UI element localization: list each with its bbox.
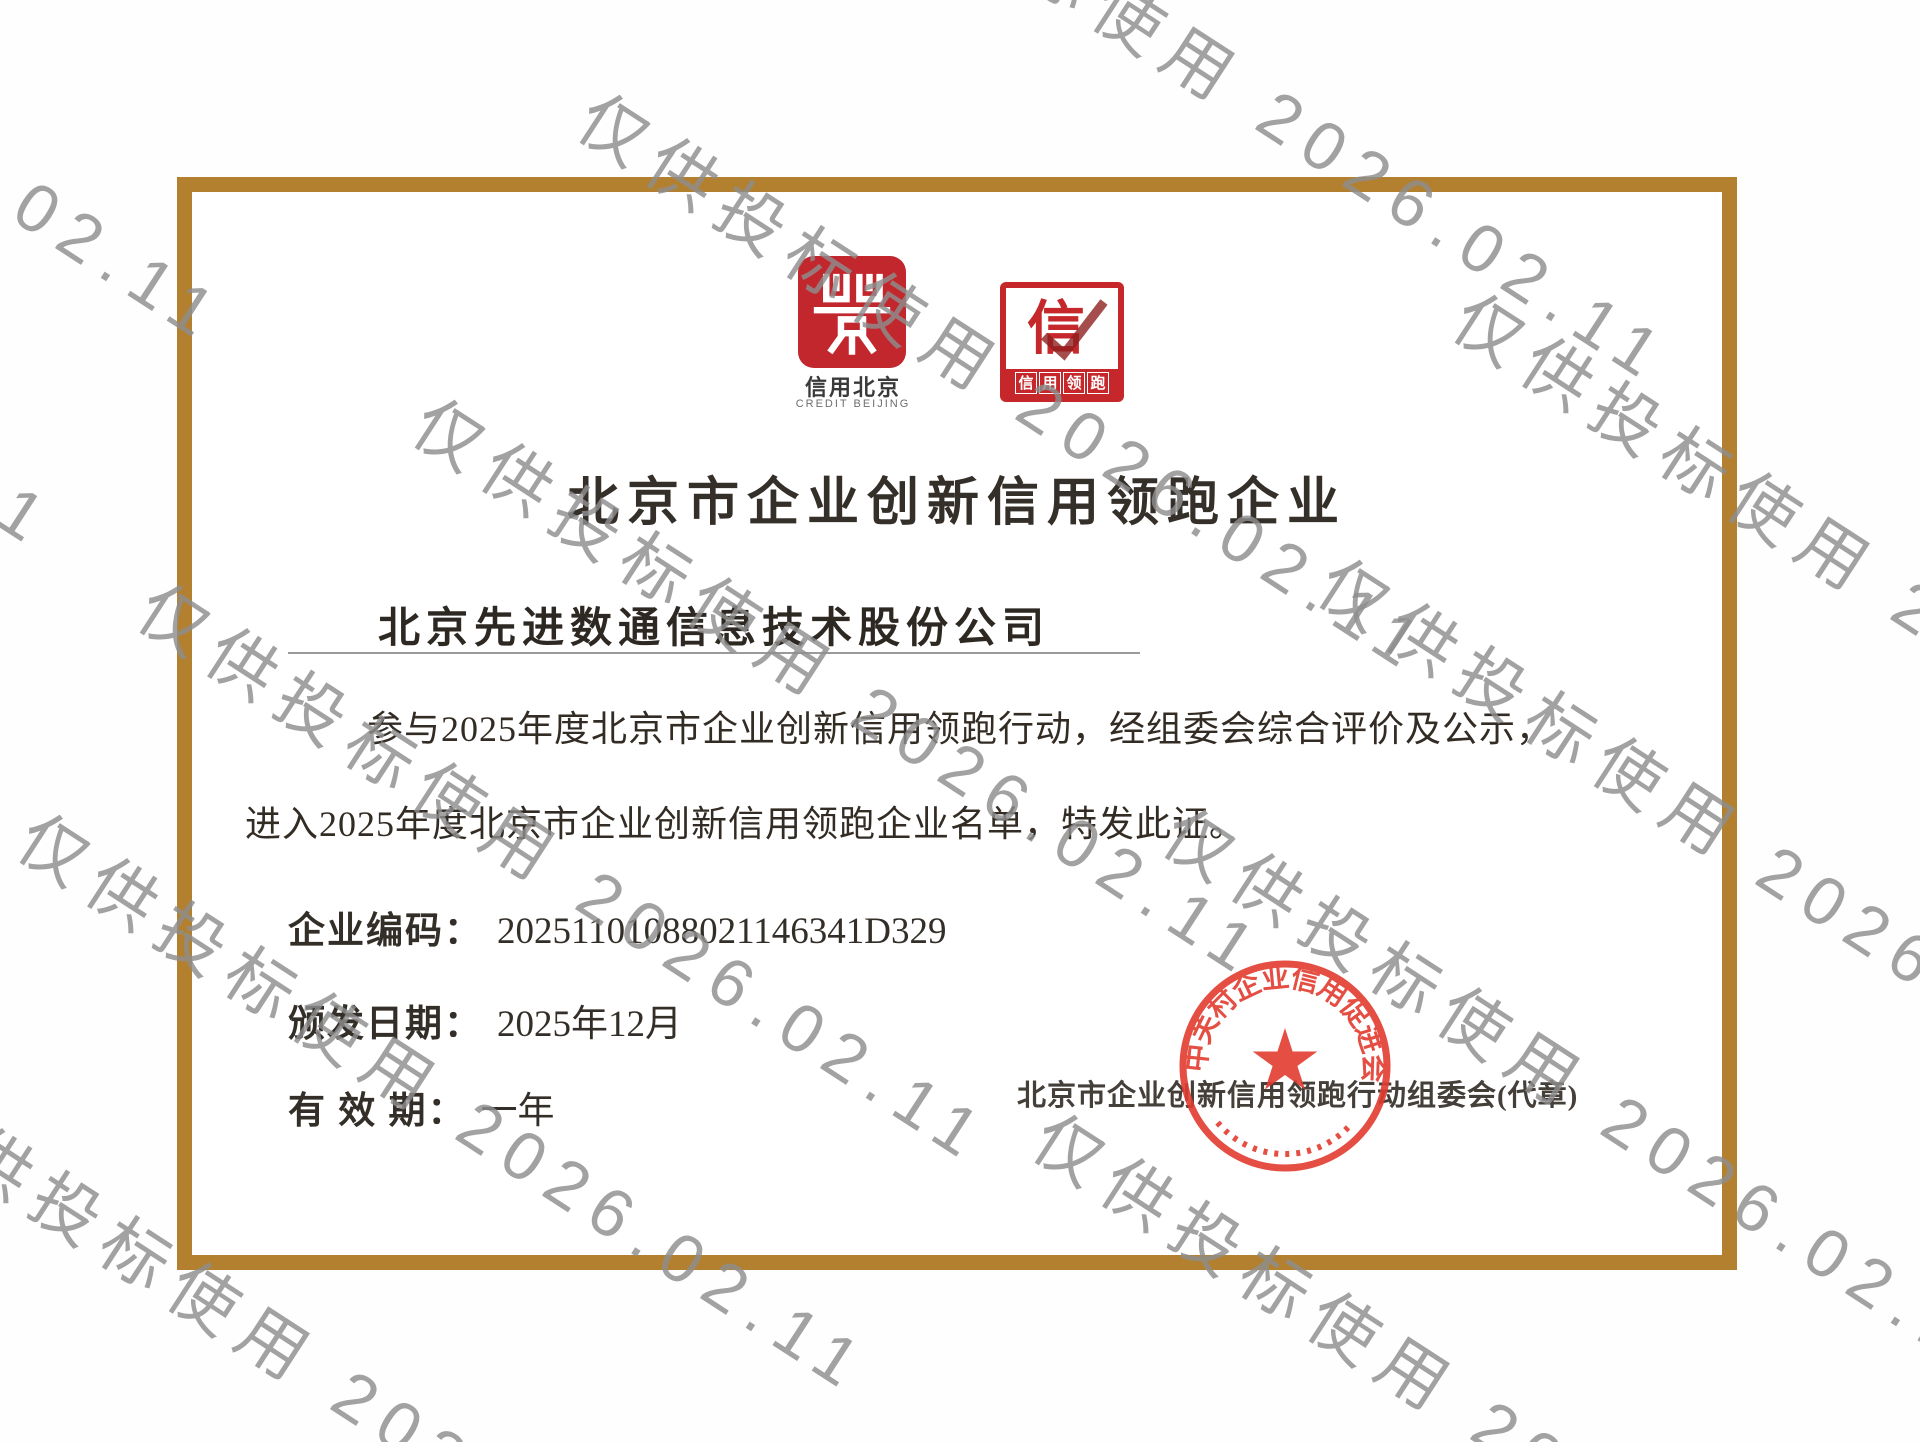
stamp-char: 信 — [1015, 372, 1037, 394]
beijing-glyph-icon — [806, 264, 898, 360]
seal-serial-marks — [1218, 1123, 1353, 1154]
stamp-char: 用 — [1039, 372, 1061, 394]
stamp-band: 信 用 领 跑 — [1006, 369, 1118, 396]
stamp-glyph-icon: 信 — [1006, 288, 1118, 369]
body-line-1: 参与2025年度北京市企业创新信用领跑行动，经组委会综合评价及公示， — [245, 700, 1857, 752]
official-seal-icon: 中关村企业信用促进会 — [1172, 950, 1398, 1186]
field-issue-date: 颁发日期：2025年12月 — [288, 993, 682, 1047]
field-validity: 有 效 期：一年 — [288, 1080, 555, 1134]
stamp-inner: 信 — [1006, 288, 1118, 369]
company-name: 北京先进数通信息技术股份公司 — [378, 606, 1050, 652]
field-label: 企业编码： — [288, 911, 483, 952]
credit-beijing-sublabel: CREDIT BEIJING — [778, 398, 928, 410]
field-value: 一年 — [481, 1091, 555, 1132]
credit-leader-stamp-icon: 信 信 用 领 跑 — [1000, 282, 1124, 402]
stamp-char: 领 — [1063, 372, 1085, 394]
certificate-title: 北京市企业创新信用领跑企业 — [177, 460, 1737, 535]
watermark-text: 仅供投标使用 2026.02.11 — [0, 0, 79, 568]
company-underline: 北京先进数通信息技术股份公司 — [288, 594, 1140, 654]
field-label: 颁发日期： — [288, 1004, 483, 1045]
credit-beijing-logo-icon — [798, 256, 906, 368]
body-line-2: 进入2025年度北京市企业创新信用领跑企业名单，特发此证。 — [245, 795, 1735, 847]
field-value: 20251101088021146341D329 — [497, 911, 946, 952]
seal-star-icon — [1253, 1028, 1318, 1090]
field-enterprise-code: 企业编码：20251101088021146341D329 — [288, 900, 946, 954]
certificate-page: 信用北京 CREDIT BEIJING 信 信 用 领 跑 北京市企业创新信用领… — [0, 0, 1920, 1442]
field-label: 有 效 期： — [288, 1091, 467, 1132]
field-value: 2025年12月 — [497, 1004, 682, 1045]
stamp-char: 跑 — [1087, 372, 1109, 394]
